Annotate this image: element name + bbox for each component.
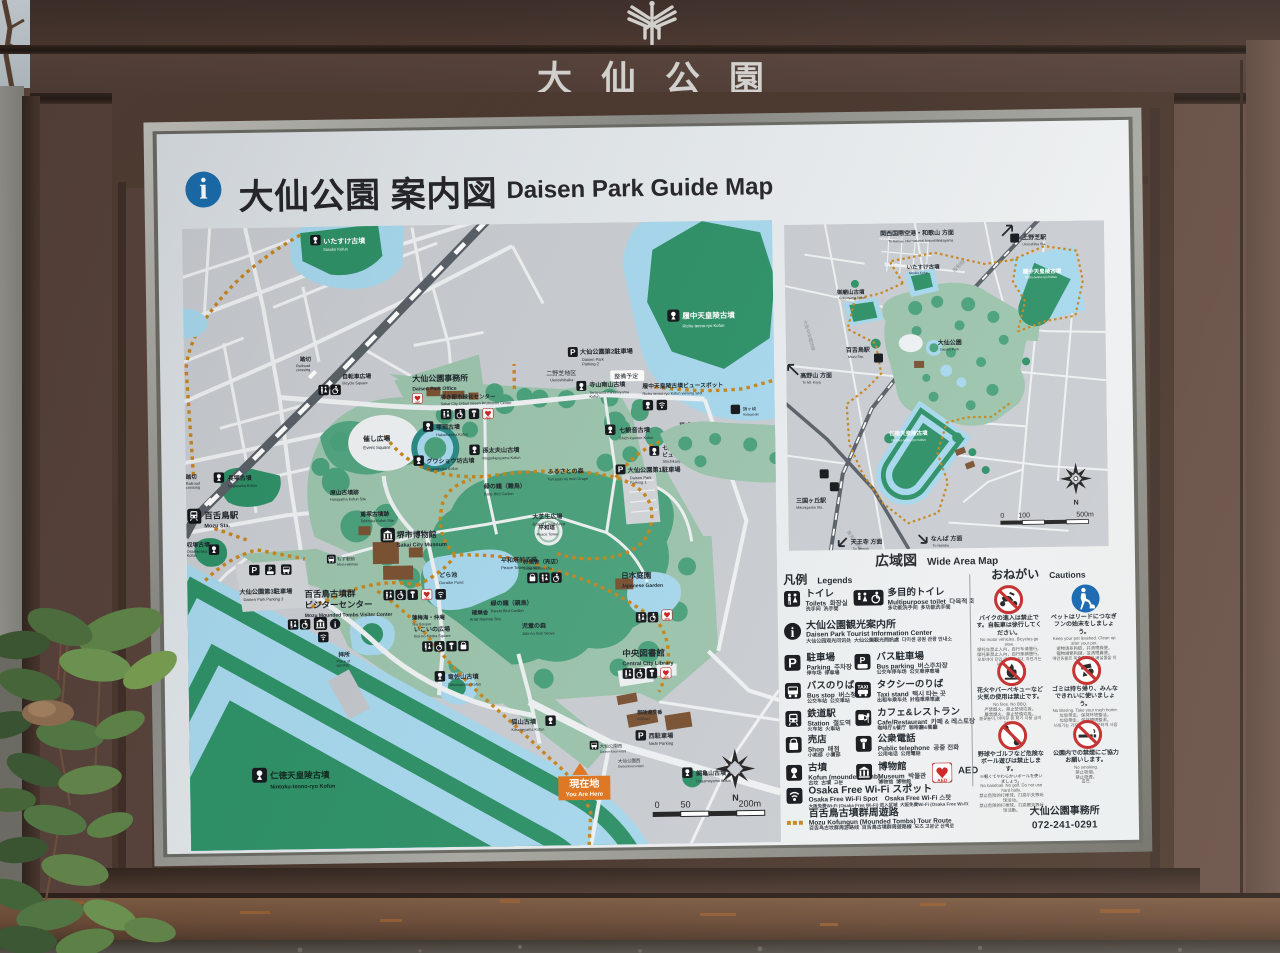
svg-text:Railroadcrossing: Railroadcrossing [186,482,200,490]
svg-text:Hatagasaki: Hatagasaki [743,412,759,416]
svg-text:Nintoku-tenno-ryo Kofun: Nintoku-tenno-ryo Kofun [891,438,926,443]
svg-text:Nagatsuka Kofun: Nagatsuka Kofun [228,484,257,488]
svg-text:Peace Tower: Peace Tower [537,532,560,536]
svg-text:Harayama Kofun Site: Harayama Kofun Site [330,497,366,502]
svg-text:Grand Lawn Area: Grand Lawn Area [532,521,565,526]
svg-text:Dogamayama Kofun: Dogamayama Kofun [696,779,731,784]
svg-text:Furusato no mori Grape: Furusato no mori Grape [548,477,588,482]
svg-text:Parent Bird Carillon: Parent Bird Carillon [491,609,524,613]
svg-text:Daisenkoen-Nishi: Daisenkoen-Nishi [618,764,644,768]
svg-text:七観音古墳: 七観音古墳 [619,426,651,434]
svg-text:大仙公園第3駐車場: 大仙公園第3駐車場 [239,587,293,596]
svg-text:西駐車場: 西駐車場 [649,732,675,740]
svg-text:KOBAN: KOBAN [637,717,650,721]
svg-text:100: 100 [1018,512,1030,519]
svg-text:Daisen Park Parking 3: Daisen Park Parking 3 [243,596,284,602]
svg-text:To Mt. Koya: To Mt. Koya [802,380,821,384]
svg-text:履中天皇陵古墳: 履中天皇陵古墳 [681,310,735,321]
svg-text:200m: 200m [739,798,762,808]
svg-text:Gobyoyama Kofun: Gobyoyama Kofun [839,296,866,300]
svg-text:Place ofworship: Place ofworship [336,659,351,667]
svg-text:Mozu Sta.: Mozu Sta. [204,523,230,529]
svg-text:Artist Reknwk Sho: Artist Reknwk Sho [470,617,501,621]
svg-text:ビジターセンター: ビジターセンター [305,599,373,610]
svg-text:Shich-kannon Kofun: Shich-kannon Kofun [619,436,653,441]
svg-text:To Tennoji: To Tennoji [853,547,869,551]
svg-text:To Namba: To Namba [933,544,949,548]
svg-text:Mozu-ekimae: Mozu-ekimae [337,562,358,566]
svg-text:百舌鳥駅: 百舌鳥駅 [204,510,239,521]
svg-text:Daisen Park: Daisen Park [940,347,959,351]
svg-text:Ikoi-no-hiroba Square: Ikoi-no-hiroba Square [414,634,451,639]
svg-text:N: N [1074,500,1079,507]
svg-text:仁徳天皇陵古墳: 仁徳天皇陵古墳 [270,770,330,781]
svg-text:狐山古墳: 狐山古墳 [511,718,537,726]
svg-text:Sakai City Museum: Sakai City Museum [397,542,447,549]
svg-text:Hakamawha Kofun: Hakamawha Kofun [436,433,468,437]
svg-text:0: 0 [655,800,660,810]
svg-text:Daisen-koen-nishi: Daisen-koen-nishi [600,749,627,753]
svg-text:Magodayuyama Kofun: Magodayuyama Kofun [482,456,520,461]
svg-text:踏切: 踏切 [300,355,312,363]
svg-text:大仙公園第2駐車場: 大仙公園第2駐車場 [580,347,634,356]
svg-text:500m: 500m [1076,511,1094,518]
svg-text:Itasuke Kofun: Itasuke Kofun [323,246,348,251]
svg-text:You Are Here: You Are Here [566,792,604,799]
svg-text:Jido-no-mori Grove: Jido-no-mori Grove [522,631,555,635]
svg-text:Bicycle Square: Bicycle Square [342,381,367,385]
svg-text:Richu-tenno-ryo Kofun: Richu-tenno-ryo Kofun [1025,275,1057,279]
svg-text:Central City Library: Central City Library [622,661,674,668]
svg-text:大仙公園第1駐車場: 大仙公園第1駐車場 [628,466,682,475]
svg-text:Richu-tenno-ryo Kofun: Richu-tenno-ryo Kofun [682,323,725,329]
svg-text:御陵通交番: 御陵通交番 [636,709,663,716]
svg-text:百舌鳥古墳群: 百舌鳥古墳群 [304,588,356,599]
svg-text:Mikunigaoka Sta.: Mikunigaoka Sta. [796,505,823,509]
svg-text:Doraike Pond: Doraike Pond [439,580,463,585]
svg-text:確樂舎: 確樂舎 [472,608,489,616]
svg-text:孫太夫山古墳: 孫太夫山古墳 [482,446,520,455]
svg-text:Shop Sansuj-sha: Shop Sansuj-sha [523,566,553,570]
svg-text:50: 50 [681,799,691,809]
svg-text:大仙公園事務所: 大仙公園事務所 [412,373,468,384]
svg-text:Baby Bird Carilon: Baby Bird Carilon [484,492,514,496]
svg-text:現在地: 現在地 [569,777,599,790]
svg-text:Uenoshiba Sta.: Uenoshiba Sta. [1022,242,1046,246]
svg-text:Tea houses: Tea houses [412,622,432,626]
svg-text:Uenoshibaika: Uenoshibaika [550,378,574,382]
svg-text:Tatsusayama Kofun: Tatsusayama Kofun [448,682,481,686]
svg-text:踏切: 踏切 [186,473,198,481]
svg-text:Event Square: Event Square [363,445,391,450]
svg-text:日本庭園: 日本庭園 [621,570,652,580]
svg-text:Mozu Sta.: Mozu Sta. [848,355,864,359]
svg-text:拝所: 拝所 [338,650,350,658]
svg-text:Nintoku-tenno-ryo Kofun: Nintoku-tenno-ryo Kofun [270,784,336,791]
svg-text:催し広場: 催し広場 [363,434,391,443]
svg-text:Railroadcrossing: Railroadcrossing [296,364,310,372]
svg-text:Japanese Garden: Japanese Garden [621,583,663,590]
svg-text:竜佐山古墳: 竜佐山古墳 [448,673,480,681]
svg-text:Nishi Parking: Nishi Parking [649,741,674,746]
svg-text:Kitsuneyama Kofun: Kitsuneyama Kofun [511,728,544,732]
svg-text:Guwashobo Kofun: Guwashobo Kofun [427,467,458,471]
svg-text:堺市博物館: 堺市博物館 [396,529,436,540]
svg-text:どら池: どら池 [439,571,457,579]
svg-text:中央図書館: 中央図書館 [622,648,665,659]
svg-text:0: 0 [1000,513,1004,520]
svg-text:Daisen Park Office: Daisen Park Office [412,386,456,393]
svg-text:Tobizuka Kofun Site: Tobizuka Kofun Site [360,519,394,523]
svg-text:Itasuke Kofun: Itasuke Kofun [909,271,929,275]
